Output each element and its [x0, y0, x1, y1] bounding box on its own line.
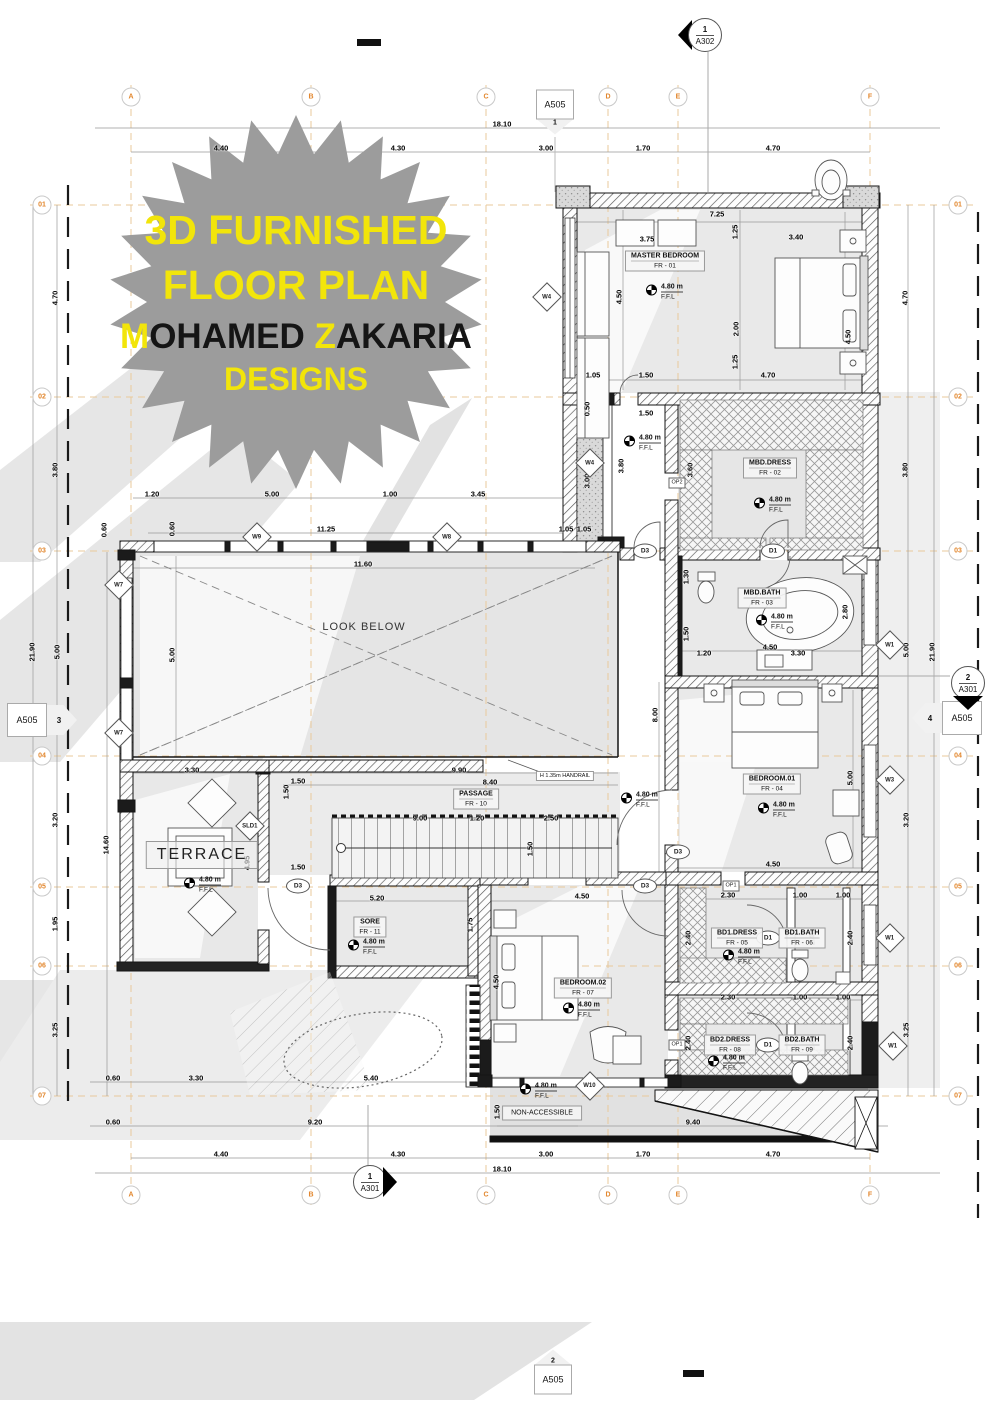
elevation-marker-a505-bottom: 2 A505 — [534, 1350, 572, 1395]
title-badge: 3D FURNISHED FLOOR PLAN MOHAMED ZAKARIA … — [96, 203, 496, 399]
stair — [332, 816, 618, 878]
section-marker-a301-bottom: 1A301 — [353, 1165, 397, 1199]
look-below-label: LOOK BELOW — [322, 621, 405, 633]
handrail-label: H 1.35m HANDRAIL — [536, 771, 594, 781]
section-arrow-icon — [953, 696, 983, 710]
terrace-label: TERRACE — [146, 841, 258, 869]
badge-line-4: DESIGNS — [96, 359, 496, 399]
section-marker-a302: 1A302 — [678, 18, 722, 52]
elevation-marker-a505-top: A505 1 — [536, 90, 574, 135]
section-arrow-icon — [383, 1167, 397, 1197]
section-marker-a301-right: 2A301 — [951, 666, 985, 710]
badge-line-1: 3D FURNISHED — [96, 203, 496, 258]
badge-line-3: MOHAMED ZAKARIA — [96, 314, 496, 360]
non-accessible-label: NON-ACCESSIBLE — [502, 1106, 582, 1121]
elevation-marker-a505-left: A505 3 — [7, 703, 77, 737]
badge-line-2: FLOOR PLAN — [96, 258, 496, 313]
floor-plan-sheet: 3D FURNISHED FLOOR PLAN MOHAMED ZAKARIA … — [0, 0, 1005, 1422]
